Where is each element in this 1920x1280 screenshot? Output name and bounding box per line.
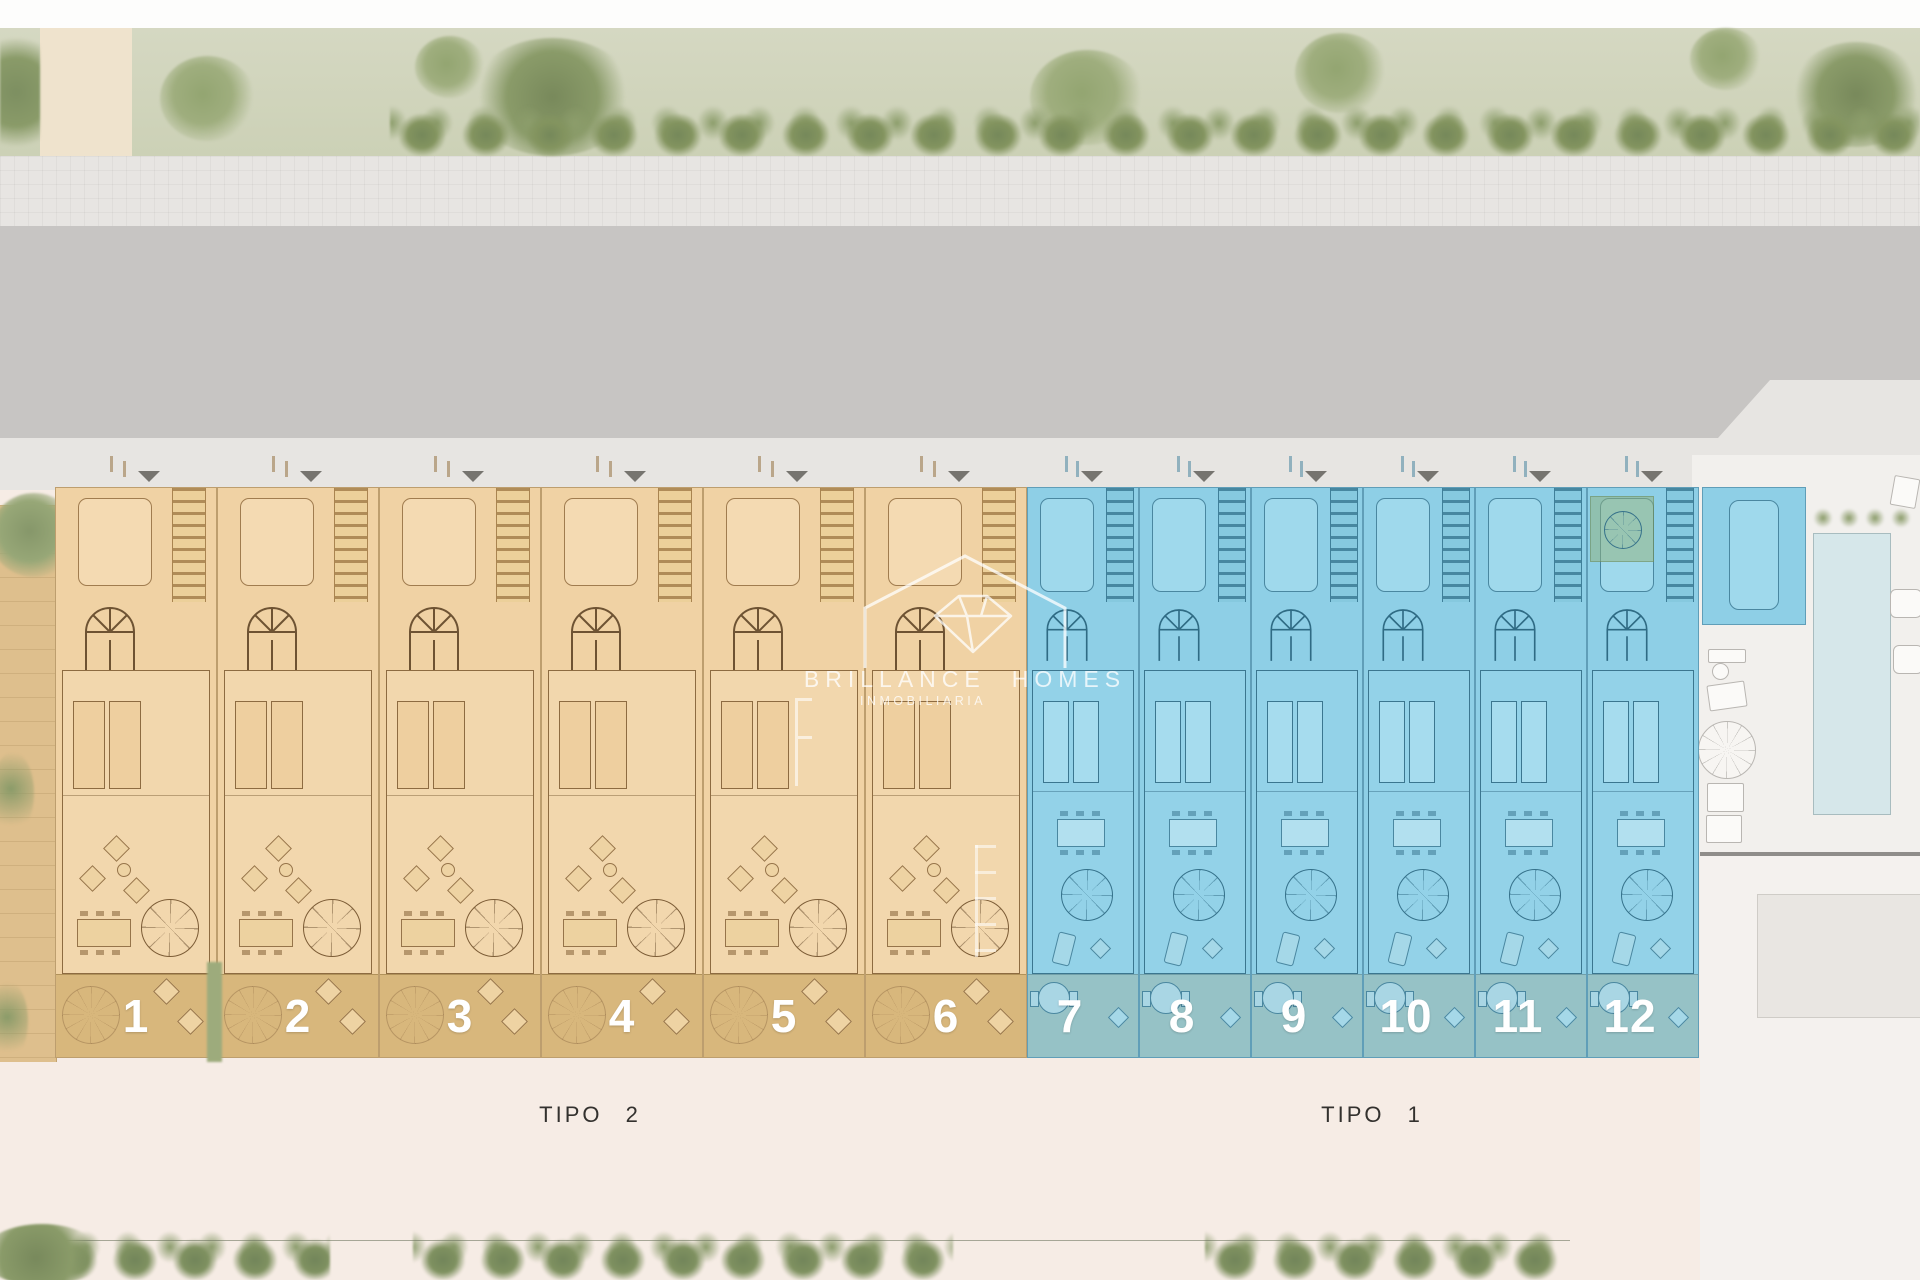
unit-garden: 12 [1588, 974, 1698, 1057]
hedge-row [1205, 1222, 1567, 1280]
boundary-line [55, 1240, 1570, 1241]
entry-arrow-icon [1641, 471, 1663, 482]
bean-bag [751, 835, 778, 862]
dining-table [1057, 819, 1105, 847]
bean-bag [589, 835, 616, 862]
bean-bag [987, 1008, 1014, 1035]
bean-bag [241, 865, 268, 892]
unit-garden: 7 [1028, 974, 1138, 1057]
parking-space [1264, 498, 1318, 592]
unit-garden: 1 [56, 974, 216, 1057]
unit-floorplan [1480, 670, 1582, 974]
type-label-tipo2: TIPO 2 [510, 1102, 670, 1128]
curved-staircase-icon [406, 600, 462, 672]
room-divider [1593, 791, 1693, 792]
bean-bag [609, 877, 636, 904]
entry-patio [1590, 496, 1654, 562]
entry-arrow-icon [1081, 471, 1103, 482]
exterior-stairs [1106, 488, 1134, 602]
room-divider [63, 795, 209, 796]
dining-table [887, 919, 941, 947]
hedge-row [413, 1222, 953, 1280]
parking-space [240, 498, 314, 586]
entry-arrow-icon [948, 471, 970, 482]
sliding-door [1603, 701, 1659, 783]
curved-staircase-icon [82, 600, 138, 672]
sliding-door [883, 701, 951, 789]
townhouse-unit[interactable]: 5 [703, 487, 865, 1058]
curved-staircase-icon [1268, 600, 1314, 666]
bean-bag [1668, 1007, 1689, 1028]
dining-table [1169, 819, 1217, 847]
unit-number-label: 10 [1379, 989, 1432, 1043]
bean-bag [727, 865, 754, 892]
unit-number-label: 12 [1603, 989, 1656, 1043]
townhouse-unit[interactable]: 10 [1363, 487, 1475, 1058]
exterior-stairs [1218, 488, 1246, 602]
unit-garden: 11 [1476, 974, 1586, 1057]
room-divider [1257, 791, 1357, 792]
unit-floorplan [548, 670, 696, 974]
exterior-stairs [1442, 488, 1470, 602]
townhouse-unit[interactable]: 12 [1587, 487, 1699, 1058]
bean-bag [1314, 938, 1335, 959]
bean-bag [477, 978, 504, 1005]
room-divider [1145, 791, 1245, 792]
exterior-stairs [982, 488, 1016, 602]
unit-floorplan [1592, 670, 1694, 974]
parking-space [1488, 498, 1542, 592]
curved-staircase-icon [1380, 600, 1426, 666]
side-table [927, 863, 941, 877]
dining-table [77, 919, 131, 947]
bean-bag [1426, 938, 1447, 959]
sliding-door [721, 701, 789, 789]
room-divider [711, 795, 857, 796]
curved-staircase-icon [1156, 600, 1202, 666]
parasol-table-icon [1061, 869, 1113, 921]
unit-garden: 5 [704, 974, 864, 1057]
room-divider [549, 795, 695, 796]
sun-lounger [1611, 931, 1636, 966]
entry-arrow-icon [1305, 471, 1327, 482]
bean-bag [1090, 938, 1111, 959]
exterior-stairs [820, 488, 854, 602]
unit-garden: 8 [1140, 974, 1250, 1057]
townhouse-unit[interactable]: 9 [1251, 487, 1363, 1058]
bean-bag [771, 877, 798, 904]
bean-bag [1202, 938, 1223, 959]
townhouse-unit[interactable]: 2 [217, 487, 379, 1058]
sliding-door [397, 701, 465, 789]
garden-table-icon [224, 986, 282, 1044]
exterior-stairs [1554, 488, 1582, 602]
garden-table-icon [386, 986, 444, 1044]
sliding-door [1379, 701, 1435, 783]
townhouse-unit[interactable]: 6 [865, 487, 1027, 1058]
unit-number-label: 6 [933, 989, 960, 1043]
sliding-door [559, 701, 627, 789]
bean-bag [447, 877, 474, 904]
exterior-stairs [496, 488, 530, 602]
bean-bag [1444, 1007, 1465, 1028]
parking-space [78, 498, 152, 586]
room-divider [225, 795, 371, 796]
unit-floorplan [872, 670, 1020, 974]
curved-staircase-icon [1044, 600, 1090, 666]
dining-table [563, 919, 617, 947]
parasol-table-icon [951, 899, 1009, 957]
parasol-table-icon [141, 899, 199, 957]
room-divider [1369, 791, 1469, 792]
unit-floorplan [224, 670, 372, 974]
townhouse-unit[interactable]: 11 [1475, 487, 1587, 1058]
garden-table-icon [548, 986, 606, 1044]
unit-number-label: 8 [1169, 989, 1196, 1043]
entry-arrow-icon [1417, 471, 1439, 482]
bean-bag [339, 1008, 366, 1035]
exterior-stairs [172, 488, 206, 602]
sliding-door [1491, 701, 1547, 783]
unit-floorplan [1256, 670, 1358, 974]
units-layer: 1 2 [0, 0, 1920, 1280]
bean-bag [103, 835, 130, 862]
bean-bag [933, 877, 960, 904]
entry-arrow-icon [786, 471, 808, 482]
garden-table-icon [62, 986, 120, 1044]
parasol-table-icon [1397, 869, 1449, 921]
entry-arrow-icon [1193, 471, 1215, 482]
bean-bag [1538, 938, 1559, 959]
townhouse-unit[interactable]: 7 [1027, 487, 1139, 1058]
parasol-table-icon [303, 899, 361, 957]
unit-number-label: 5 [771, 989, 798, 1043]
bean-bag [265, 835, 292, 862]
dining-table [1281, 819, 1329, 847]
parking-space [402, 498, 476, 586]
side-table [279, 863, 293, 877]
unit-number-label: 2 [285, 989, 312, 1043]
bean-bag [963, 978, 990, 1005]
unit-garden: 9 [1252, 974, 1362, 1057]
bean-bag [427, 835, 454, 862]
curved-staircase-icon [568, 600, 624, 672]
unit-number-label: 9 [1281, 989, 1308, 1043]
room-divider [387, 795, 533, 796]
unit-number-label: 3 [447, 989, 474, 1043]
bean-bag [825, 1008, 852, 1035]
type-label-tipo1: TIPO 1 [1292, 1102, 1452, 1128]
bean-bag [889, 865, 916, 892]
unit-number-label: 4 [609, 989, 636, 1043]
parking-space [726, 498, 800, 586]
parking-space [888, 498, 962, 586]
bean-bag [565, 865, 592, 892]
unit-floorplan [386, 670, 534, 974]
side-table [765, 863, 779, 877]
exterior-stairs [1330, 488, 1358, 602]
bean-bag [501, 1008, 528, 1035]
bean-bag [285, 877, 312, 904]
bean-bag [801, 978, 828, 1005]
curved-staircase-icon [730, 600, 786, 672]
parasol-table-icon [465, 899, 523, 957]
unit-floorplan [710, 670, 858, 974]
sliding-door [1267, 701, 1323, 783]
parking-space [1040, 498, 1094, 592]
side-table [441, 863, 455, 877]
bean-bag [1332, 1007, 1353, 1028]
sun-lounger [1051, 931, 1076, 966]
dining-table [725, 919, 779, 947]
dining-table [401, 919, 455, 947]
bean-bag [663, 1008, 690, 1035]
parasol-table-icon [1509, 869, 1561, 921]
sliding-door [235, 701, 303, 789]
unit-number-label: 11 [1493, 989, 1544, 1043]
sliding-door [1043, 701, 1099, 783]
entry-arrow-icon [624, 471, 646, 482]
parasol-table-icon [1173, 869, 1225, 921]
sliding-door [1155, 701, 1211, 783]
sun-lounger [1387, 931, 1412, 966]
room-divider [873, 795, 1019, 796]
sun-lounger [1499, 931, 1524, 966]
side-table [117, 863, 131, 877]
parasol-table-icon [627, 899, 685, 957]
bean-bag [403, 865, 430, 892]
dining-table [239, 919, 293, 947]
unit-number-label: 1 [123, 989, 150, 1043]
unit-number-label: 7 [1057, 989, 1084, 1043]
dining-table [1617, 819, 1665, 847]
curved-staircase-icon [244, 600, 300, 672]
unit-garden: 10 [1364, 974, 1474, 1057]
bean-bag [639, 978, 666, 1005]
bean-bag [315, 978, 342, 1005]
townhouse-unit[interactable]: 1 [55, 487, 217, 1058]
parasol-table-icon [1621, 869, 1673, 921]
townhouse-unit[interactable]: 4 [541, 487, 703, 1058]
sliding-door [73, 701, 141, 789]
parking-space [1376, 498, 1430, 592]
entry-arrow-icon [462, 471, 484, 482]
sun-lounger [1275, 931, 1300, 966]
unit-floorplan [1144, 670, 1246, 974]
unit-floorplan [1032, 670, 1134, 974]
unit-garden: 4 [542, 974, 702, 1057]
townhouse-unit[interactable]: 8 [1139, 487, 1251, 1058]
entry-arrow-icon [300, 471, 322, 482]
garden-table-icon [710, 986, 768, 1044]
exterior-stairs [334, 488, 368, 602]
side-table [603, 863, 617, 877]
parking-space [1729, 500, 1779, 610]
bean-bag [1220, 1007, 1241, 1028]
dining-table [1393, 819, 1441, 847]
parking-space [1152, 498, 1206, 592]
entry-arrow-icon [1529, 471, 1551, 482]
site-plan-canvas: 1 2 [0, 0, 1920, 1280]
bean-bag [1108, 1007, 1129, 1028]
bean-bag [913, 835, 940, 862]
curved-staircase-icon [1604, 600, 1650, 666]
garden-divider-hedge [207, 962, 222, 1062]
unit-garden: 3 [380, 974, 540, 1057]
parking-space [564, 498, 638, 586]
unit-floorplan [62, 670, 210, 974]
parasol-table-icon [1285, 869, 1337, 921]
exterior-stairs [658, 488, 692, 602]
sun-lounger [1163, 931, 1188, 966]
bean-bag [123, 877, 150, 904]
unit-garden: 6 [866, 974, 1026, 1057]
bean-bag [1650, 938, 1671, 959]
room-divider [1033, 791, 1133, 792]
unit-garden: 2 [218, 974, 378, 1057]
parasol-table-icon [789, 899, 847, 957]
dining-table [1505, 819, 1553, 847]
entry-arrow-icon [138, 471, 160, 482]
curved-staircase-icon [1492, 600, 1538, 666]
unit12-parking-annex [1702, 487, 1806, 625]
bean-bag [153, 978, 180, 1005]
exterior-stairs [1666, 488, 1694, 602]
townhouse-unit[interactable]: 3 [379, 487, 541, 1058]
bean-bag [1556, 1007, 1577, 1028]
room-divider [1481, 791, 1581, 792]
bean-bag [177, 1008, 204, 1035]
unit-floorplan [1368, 670, 1470, 974]
bean-bag [79, 865, 106, 892]
garden-table-icon [872, 986, 930, 1044]
curved-staircase-icon [892, 600, 948, 672]
